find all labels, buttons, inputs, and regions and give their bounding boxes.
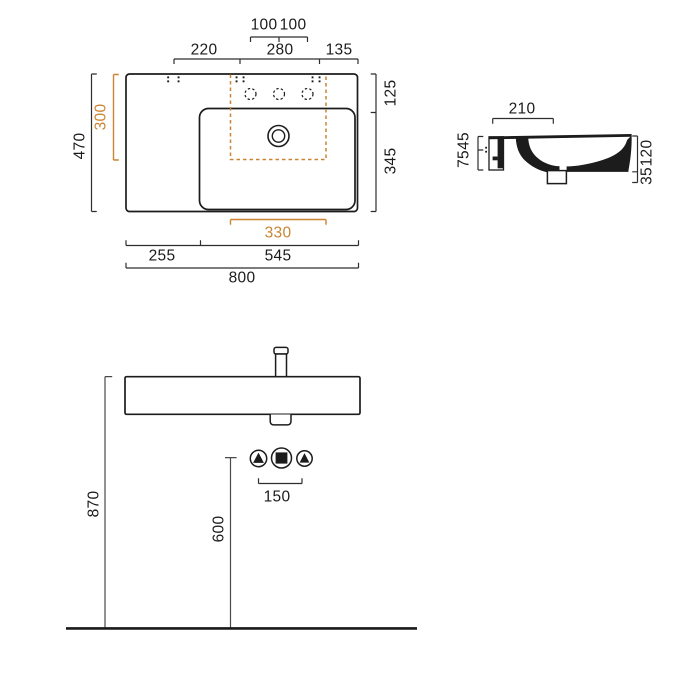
plan-tap-holes xyxy=(245,89,313,100)
side-backwall-core xyxy=(498,139,504,168)
plan-view xyxy=(92,37,377,268)
dim-bowl-width: 545 xyxy=(265,248,292,264)
dim-body-height: 120 xyxy=(639,140,655,167)
dim-fix-span-1: 220 xyxy=(191,42,218,58)
front-basin-outline xyxy=(125,377,360,415)
dim-fix-span-3: 135 xyxy=(326,42,353,58)
dim-rear-ledge-depth: 125 xyxy=(383,80,399,107)
technical-drawing-canvas: 100 100 220 280 135 470 300 125 345 330 … xyxy=(0,0,700,700)
front-elevation-view xyxy=(66,347,417,628)
side-bowl-right-wall xyxy=(567,135,632,172)
supply-symbol-right xyxy=(297,451,312,466)
side-drain-outlet xyxy=(547,171,566,184)
dim-cutout-depth: 300 xyxy=(93,104,109,131)
side-backwall-tab xyxy=(493,157,498,161)
drain-symbol-center xyxy=(272,448,292,468)
plan-dimension-lines-accent xyxy=(114,75,327,225)
dim-ledge-depth: 210 xyxy=(509,101,536,117)
plan-dimension-lines xyxy=(92,37,377,268)
front-pitch-dimension xyxy=(259,478,303,483)
dim-connection-pitch: 150 xyxy=(264,489,291,505)
supply-symbol-left xyxy=(250,450,266,466)
dim-fix-span-2: 280 xyxy=(267,42,294,58)
plan-drain-inner xyxy=(272,130,284,142)
front-drain-stub xyxy=(270,415,291,425)
side-fixing-dots xyxy=(485,147,487,153)
dim-overall-depth: 470 xyxy=(72,133,88,160)
side-section-view xyxy=(478,119,638,184)
plan-fixing-dots xyxy=(167,76,320,82)
dim-rim-to-fix: 45 xyxy=(456,132,472,150)
plan-drain-icon xyxy=(268,126,289,147)
dim-rim-height: 870 xyxy=(86,491,102,518)
dim-fix-to-bottom: 75 xyxy=(456,150,472,168)
dim-outlet-height: 600 xyxy=(211,516,227,543)
dim-hole-pitch-right: 100 xyxy=(280,17,307,33)
faucet-icon xyxy=(274,347,288,376)
dim-cutout-width: 330 xyxy=(265,225,292,241)
dim-outlet-drop: 35 xyxy=(639,167,655,185)
dim-hole-pitch-left: 100 xyxy=(251,17,278,33)
dim-bowl-depth: 345 xyxy=(383,148,399,175)
plan-basin-outline xyxy=(126,74,358,212)
dim-overall-width: 800 xyxy=(229,270,256,286)
side-rim-line xyxy=(489,135,632,138)
dim-left-ledge-width: 255 xyxy=(149,248,176,264)
